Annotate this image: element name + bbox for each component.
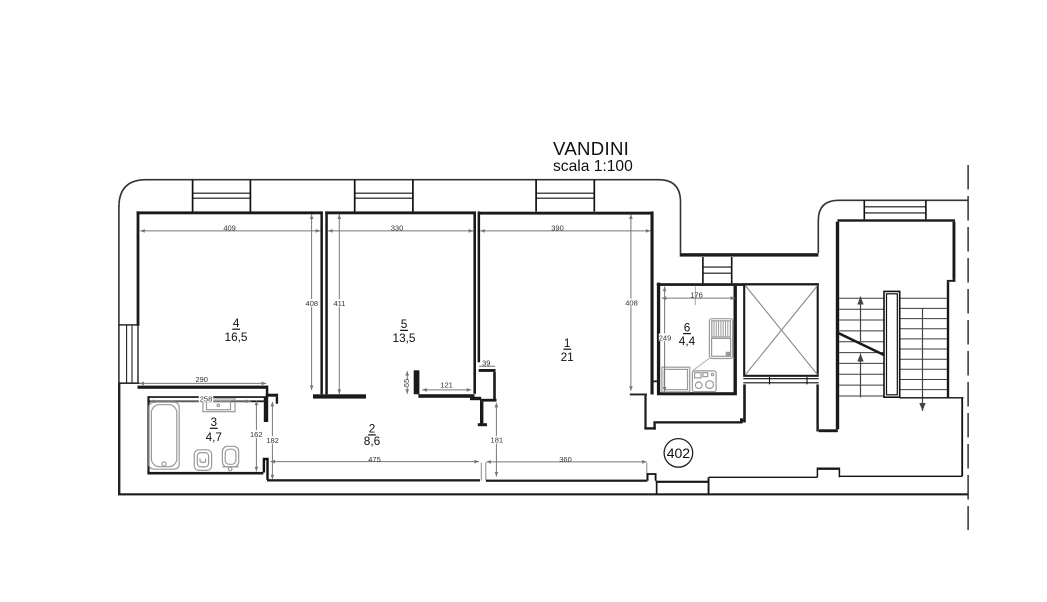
svg-text:scala 1:100: scala 1:100 [553,158,633,175]
svg-text:402: 402 [667,445,691,461]
svg-text:360: 360 [559,455,572,464]
svg-text:411: 411 [334,299,346,308]
svg-text:55: 55 [402,379,411,387]
svg-text:4,4: 4,4 [679,334,696,348]
svg-text:4: 4 [233,316,240,330]
svg-text:3: 3 [211,415,218,429]
svg-text:6: 6 [684,320,691,334]
svg-text:176: 176 [690,291,703,300]
svg-text:1: 1 [564,336,571,350]
svg-text:249: 249 [659,333,672,342]
svg-text:121: 121 [440,381,453,390]
svg-text:390: 390 [551,223,564,232]
svg-text:181: 181 [491,436,504,445]
svg-text:16,5: 16,5 [225,330,248,344]
svg-text:258: 258 [200,395,213,404]
svg-text:475: 475 [368,455,381,464]
svg-text:4,7: 4,7 [206,430,222,444]
svg-text:VANDINI: VANDINI [553,138,629,159]
svg-text:408: 408 [625,299,638,308]
svg-text:39: 39 [482,359,490,368]
svg-text:408: 408 [306,299,319,308]
svg-text:162: 162 [250,430,263,439]
svg-text:409: 409 [223,223,236,232]
svg-text:290: 290 [195,375,208,384]
svg-text:182: 182 [266,436,279,445]
svg-text:21: 21 [561,350,574,364]
svg-text:8,6: 8,6 [364,434,381,448]
svg-text:13,5: 13,5 [393,331,416,345]
svg-text:5: 5 [401,317,408,331]
svg-text:330: 330 [391,223,404,232]
